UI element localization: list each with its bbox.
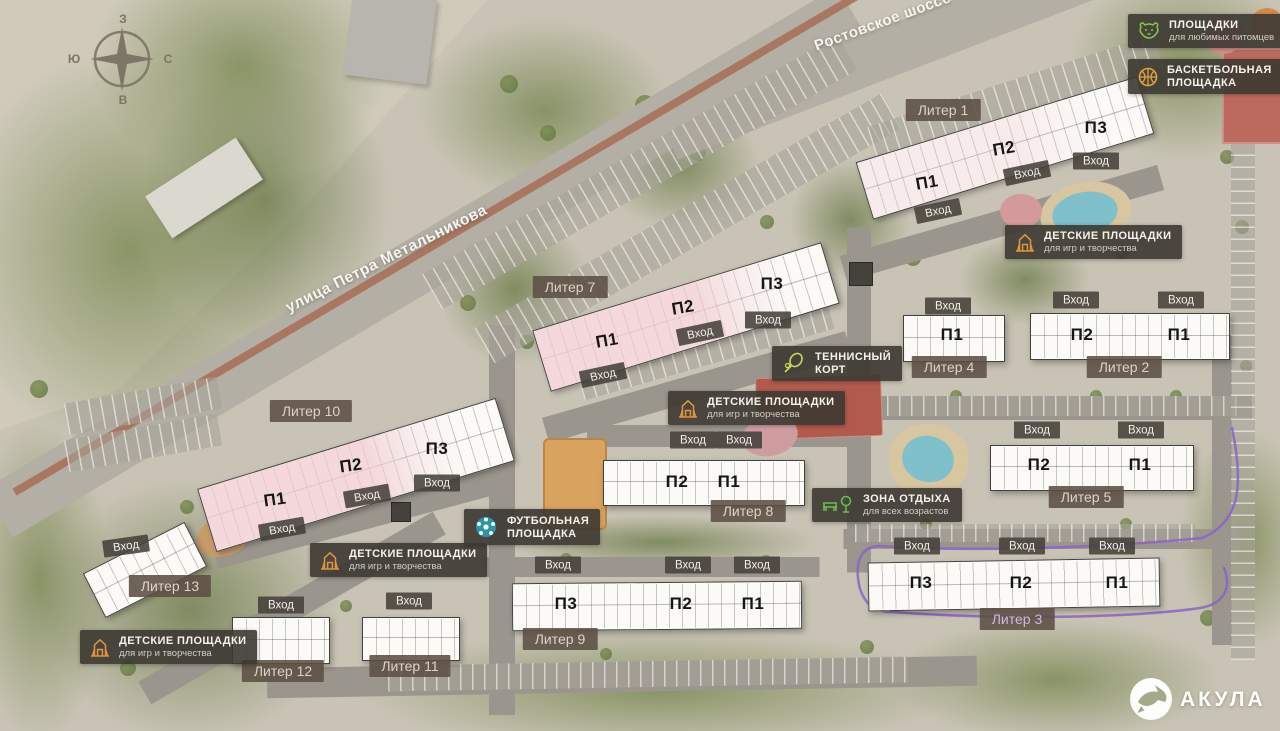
football-field-label: ФУТБОЛЬНАЯПЛОЩАДКА bbox=[464, 509, 600, 545]
football-icon bbox=[473, 514, 499, 540]
section-label: П1 bbox=[1106, 573, 1129, 593]
dog-icon bbox=[1137, 21, 1161, 41]
label-line1: ПЛОЩАДКИ bbox=[1169, 19, 1274, 31]
kids-playground-label: ДЕТСКИЕ ПЛОЩАДКИдля игр и творчества bbox=[1005, 225, 1182, 259]
label-line2: ПЛОЩАДКА bbox=[507, 528, 589, 540]
entrance-badge: Вход bbox=[1053, 292, 1099, 309]
label-line2: для игр и творчества bbox=[349, 561, 476, 572]
playground-icon bbox=[89, 636, 111, 658]
entrance-badge: Вход bbox=[999, 538, 1045, 555]
entrance-badge: Вход bbox=[716, 432, 762, 449]
tree bbox=[600, 648, 612, 660]
entrance-badge: Вход bbox=[1089, 538, 1135, 555]
entrance-badge: Вход bbox=[1014, 422, 1060, 439]
building-name-badge: Литер 10 bbox=[270, 400, 352, 422]
section-label: П2 bbox=[670, 296, 696, 320]
label-line2: для игр и творчества bbox=[119, 648, 246, 659]
entrance-badge: Вход bbox=[1073, 153, 1119, 170]
building-name-badge: Литер 4 bbox=[912, 356, 987, 378]
section-label: П2 bbox=[670, 594, 693, 614]
label-text: ДЕТСКИЕ ПЛОЩАДКИдля игр и творчества bbox=[1044, 230, 1171, 254]
label-line1: ФУТБОЛЬНАЯ bbox=[507, 515, 589, 527]
label-text: ПЛОЩАДКИдля любимых питомцев bbox=[1169, 19, 1274, 43]
label-text: ДЕТСКИЕ ПЛОЩАДКИдля игр и творчества bbox=[349, 548, 476, 572]
site-plan-page: П1 П2 П3 П1 П2 П3 П1 П2 П3 П1 П2 П1 П2 П… bbox=[0, 0, 1280, 731]
section-label: П1 bbox=[941, 325, 964, 345]
neighbor-building bbox=[343, 0, 437, 85]
section-label: П3 bbox=[426, 439, 449, 459]
label-text: ЗОНА ОТДЫХАдля всех возрастов bbox=[863, 493, 951, 517]
shark-logo-icon bbox=[1128, 676, 1174, 722]
legend-basketball: БАСКЕТБОЛЬНАЯПЛОЩАДКА bbox=[1128, 59, 1280, 94]
label-line1: ДЕТСКИЕ ПЛОЩАДКИ bbox=[119, 635, 246, 647]
building-liter-2 bbox=[1030, 313, 1230, 360]
utility-box bbox=[391, 502, 411, 522]
building-name-badge: Литер 9 bbox=[523, 628, 598, 650]
entrance-badge: Вход bbox=[745, 312, 791, 329]
entrance-badge: Вход bbox=[925, 298, 971, 315]
building-liter-5 bbox=[990, 445, 1194, 491]
kids-playground-label: ДЕТСКИЕ ПЛОЩАДКИдля игр и творчества bbox=[310, 543, 487, 577]
section-label: П1 bbox=[594, 329, 620, 353]
playground-icon bbox=[319, 549, 341, 571]
section-label: П2 bbox=[666, 472, 689, 492]
rest-zone-label: ЗОНА ОТДЫХАдля всех возрастов bbox=[812, 488, 962, 522]
section-label: П2 bbox=[1071, 325, 1094, 345]
compass-east: В bbox=[119, 93, 128, 107]
building-name-badge: Литер 5 bbox=[1049, 486, 1124, 508]
developer-logo-text: АКУЛА bbox=[1180, 688, 1266, 712]
tennis-icon bbox=[781, 352, 807, 376]
tree bbox=[30, 380, 48, 398]
building-name-badge: Литер 3 bbox=[980, 608, 1055, 630]
section-label: П2 bbox=[338, 455, 363, 478]
section-label: П3 bbox=[761, 274, 784, 294]
label-line1: ЗОНА ОТДЫХА bbox=[863, 493, 951, 505]
label-text: БАСКЕТБОЛЬНАЯПЛОЩАДКА bbox=[1167, 64, 1272, 89]
kids-playground-label: ДЕТСКИЕ ПЛОЩАДКИдля игр и творчества bbox=[80, 630, 257, 664]
entrance-badge: Вход bbox=[414, 475, 460, 492]
label-line2: для всех возрастов bbox=[863, 506, 951, 517]
label-line1: ДЕТСКИЕ ПЛОЩАДКИ bbox=[349, 548, 476, 560]
section-label: П2 bbox=[1010, 573, 1033, 593]
section-label: П1 bbox=[914, 171, 940, 195]
basketball-icon bbox=[1137, 66, 1159, 88]
label-text: ФУТБОЛЬНАЯПЛОЩАДКА bbox=[507, 515, 589, 540]
section-label: П2 bbox=[991, 137, 1017, 161]
bench-tree-icon bbox=[821, 494, 855, 516]
kids-playground-label: ДЕТСКИЕ ПЛОЩАДКИдля игр и творчества bbox=[668, 391, 845, 425]
playground-icon bbox=[677, 397, 699, 419]
tennis-court-label: ТЕННИСНЫЙКОРТ bbox=[772, 346, 902, 381]
entrance-badge: Вход bbox=[665, 557, 711, 574]
label-line1: ДЕТСКИЕ ПЛОЩАДКИ bbox=[1044, 230, 1171, 242]
building-name-badge: Литер 2 bbox=[1087, 356, 1162, 378]
label-line2: для любимых питомцев bbox=[1169, 32, 1274, 43]
label-line2: для игр и творчества bbox=[707, 409, 834, 420]
entrance-badge: Вход bbox=[258, 597, 304, 614]
tree bbox=[180, 500, 194, 514]
playground-icon bbox=[1014, 231, 1036, 253]
section-label: П1 bbox=[262, 489, 287, 512]
label-line2: ПЛОЩАДКА bbox=[1167, 77, 1272, 89]
section-label: П2 bbox=[1028, 455, 1051, 475]
section-label: П3 bbox=[1085, 118, 1108, 138]
tree bbox=[500, 75, 518, 93]
entrance-badge: Вход bbox=[1158, 292, 1204, 309]
compass-south: Ю bbox=[68, 52, 80, 66]
building-name-badge: Литер 1 bbox=[906, 99, 981, 121]
entrance-badge: Вход bbox=[386, 593, 432, 610]
building-name-badge: Литер 8 bbox=[711, 500, 786, 522]
building-name-badge: Литер 13 bbox=[129, 575, 211, 597]
building-name-badge: Литер 7 bbox=[533, 276, 608, 298]
label-text: ТЕННИСНЫЙКОРТ bbox=[815, 351, 891, 376]
entrance-badge: Вход bbox=[894, 538, 940, 555]
entrance-badge: Вход bbox=[670, 432, 716, 449]
legend-pets: ПЛОЩАДКИдля любимых питомцев bbox=[1128, 14, 1280, 48]
tree bbox=[540, 125, 556, 141]
parking-strip bbox=[887, 396, 1237, 416]
entrance-badge: Вход bbox=[1118, 422, 1164, 439]
compass-north: С bbox=[164, 52, 173, 66]
compass-west: З bbox=[119, 12, 127, 26]
building-name-badge: Литер 11 bbox=[369, 655, 450, 677]
tree bbox=[760, 215, 774, 229]
section-label: П1 bbox=[1129, 455, 1152, 475]
compass-rose bbox=[86, 23, 160, 97]
label-line1: БАСКЕТБОЛЬНАЯ bbox=[1167, 64, 1272, 76]
label-line1: ТЕННИСНЫЙ bbox=[815, 351, 891, 363]
label-line2: для игр и творчества bbox=[1044, 243, 1171, 254]
entrance-badge: Вход bbox=[535, 557, 581, 574]
label-text: ДЕТСКИЕ ПЛОЩАДКИдля игр и творчества bbox=[119, 635, 246, 659]
section-label: П3 bbox=[555, 594, 578, 614]
entrance-badge: Вход bbox=[734, 557, 780, 574]
tree bbox=[340, 600, 352, 612]
section-label: П1 bbox=[1168, 325, 1191, 345]
section-label: П1 bbox=[742, 594, 765, 614]
utility-box bbox=[849, 262, 873, 286]
label-line2: КОРТ bbox=[815, 364, 891, 376]
section-label: П1 bbox=[718, 472, 741, 492]
section-label: П3 bbox=[910, 573, 933, 593]
label-text: ДЕТСКИЕ ПЛОЩАДКИдля игр и творчества bbox=[707, 396, 834, 420]
label-line1: ДЕТСКИЕ ПЛОЩАДКИ bbox=[707, 396, 834, 408]
playground-zone bbox=[1000, 194, 1042, 228]
